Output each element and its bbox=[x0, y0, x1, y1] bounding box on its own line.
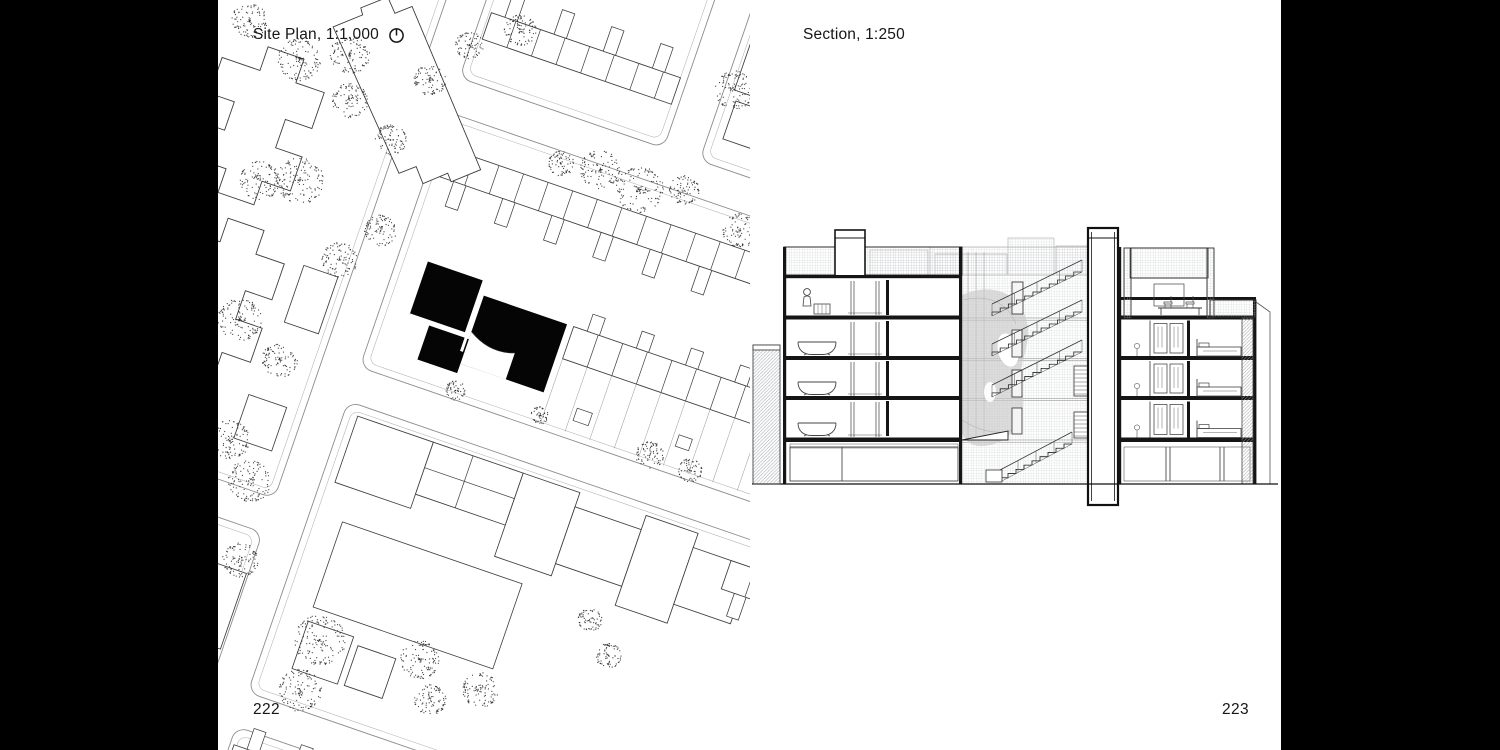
site-plan-drawing bbox=[218, 0, 750, 750]
page-right: Section, 1:250 223 bbox=[750, 0, 1281, 750]
page-number-left: 222 bbox=[253, 701, 280, 719]
north-arrow-icon bbox=[388, 27, 405, 44]
letterbox-left bbox=[0, 0, 218, 750]
site-plan-title: Site Plan, 1:1,000 bbox=[253, 26, 405, 44]
book-spread: Site Plan, 1:1,000 222 Section, 1:250 22… bbox=[218, 0, 1281, 750]
section-drawing bbox=[750, 0, 1281, 750]
page-number-right: 223 bbox=[1222, 701, 1249, 719]
page-left: Site Plan, 1:1,000 222 bbox=[218, 0, 750, 750]
letterbox-right bbox=[1281, 0, 1500, 750]
site-plan-title-text: Site Plan, 1:1,000 bbox=[253, 26, 379, 44]
section-title: Section, 1:250 bbox=[803, 26, 905, 44]
